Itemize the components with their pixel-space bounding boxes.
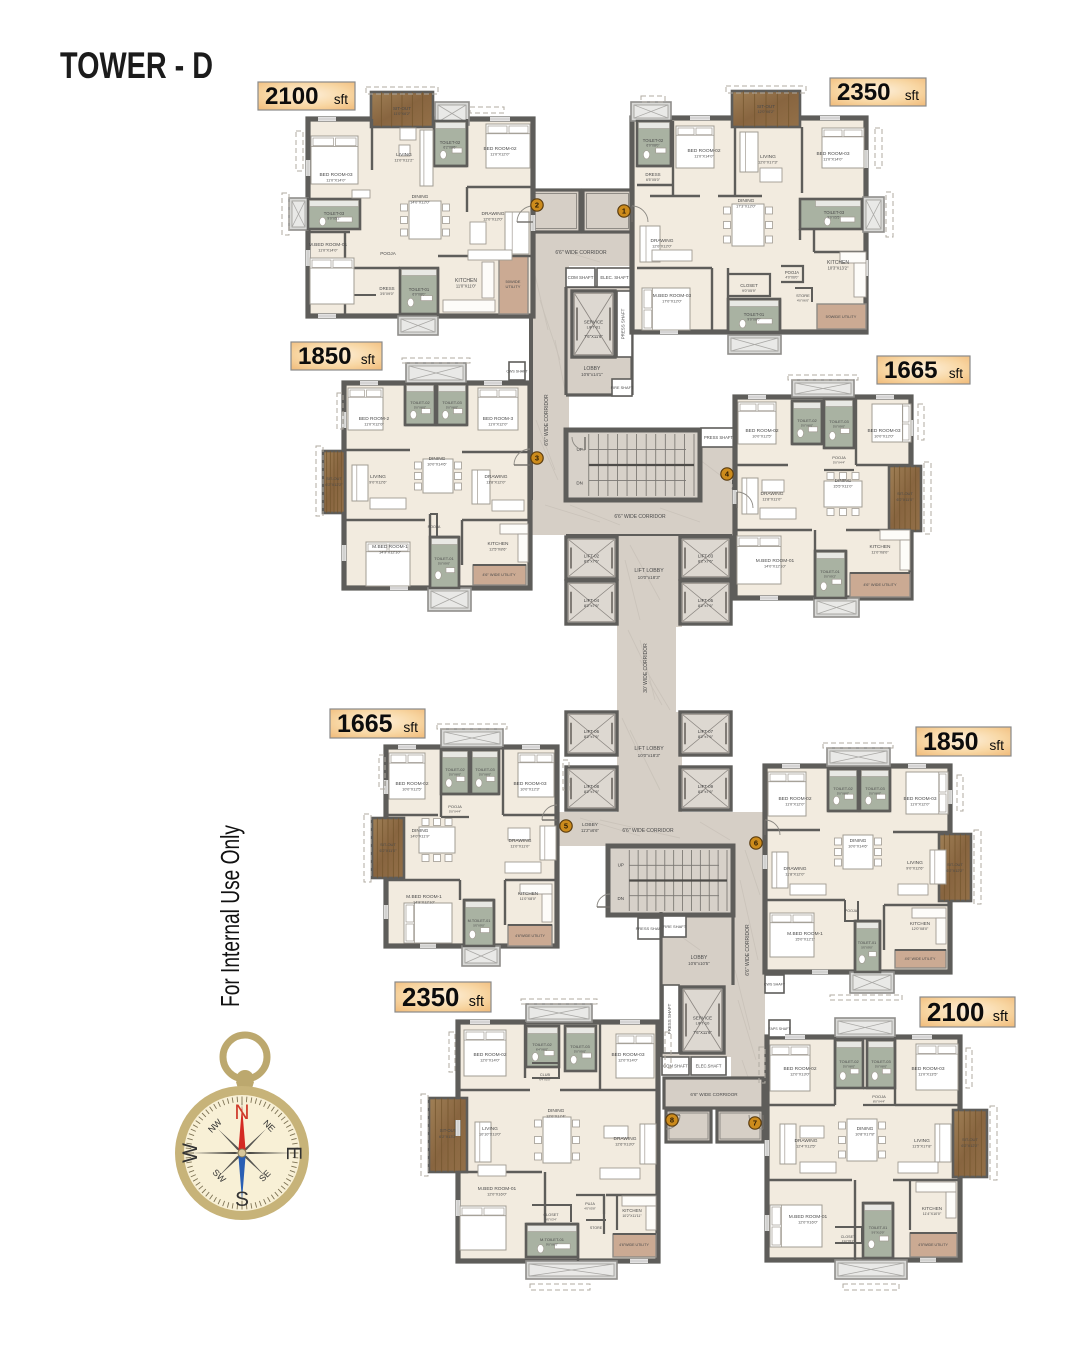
svg-text:10'3"X13'2": 10'3"X13'2" <box>828 266 849 271</box>
svg-text:8'2"x7'6": 8'2"x7'6" <box>698 603 714 608</box>
svg-text:1665: 1665 <box>884 357 938 384</box>
svg-text:2350: 2350 <box>402 984 459 1012</box>
svg-text:6'6" WIDE CORRIDOR: 6'6" WIDE CORRIDOR <box>555 250 607 256</box>
svg-text:TOWER - D: TOWER - D <box>60 45 213 86</box>
svg-text:6'6" WIDE CORRIDOR: 6'6" WIDE CORRIDOR <box>622 828 674 834</box>
svg-text:CLOSET: CLOSET <box>841 1235 856 1239</box>
svg-text:1665: 1665 <box>337 710 393 738</box>
svg-text:TOILET-02: TOILET-02 <box>440 140 461 145</box>
svg-text:17'0"X12'0": 17'0"X12'0" <box>662 298 682 303</box>
svg-text:12'0"X12'0": 12'0"X12'0" <box>652 243 672 248</box>
svg-text:9'0"X6'0": 9'0"X6'0" <box>546 1243 558 1247</box>
svg-text:6'2"X11'0": 6'2"X11'0" <box>380 849 398 853</box>
svg-text:12'0"X8'0": 12'0"X8'0" <box>912 927 929 931</box>
svg-text:TOILET-03: TOILET-03 <box>871 1059 891 1064</box>
svg-text:11'0"X14'0": 11'0"X14'0" <box>694 153 714 158</box>
svg-text:9'0"X6'0": 9'0"X6'0" <box>747 318 761 322</box>
svg-text:5'0"X8'0": 5'0"X8'0" <box>875 1065 887 1069</box>
svg-text:4'6" WIDE UTILITY: 4'6" WIDE UTILITY <box>482 572 516 577</box>
svg-text:8'2"x7'6": 8'2"x7'6" <box>584 734 600 739</box>
svg-text:11'0"X12'0": 11'0"X12'0" <box>490 151 510 156</box>
svg-text:7: 7 <box>753 1119 757 1128</box>
svg-text:11'8"X12'0": 11'8"X12'0" <box>486 479 506 484</box>
svg-text:M.TOILET-01: M.TOILET-01 <box>540 1237 565 1242</box>
svg-text:SIT-OUT: SIT-OUT <box>326 476 342 481</box>
svg-text:9'0"X3'4": 9'0"X3'4" <box>545 1217 557 1221</box>
svg-text:POOJA: POOJA <box>832 455 846 460</box>
svg-text:6'6" WIDE CORRIDOR: 6'6" WIDE CORRIDOR <box>690 1092 738 1097</box>
svg-text:10'6"x10'5": 10'6"x10'5" <box>688 961 710 966</box>
svg-text:5'0"X8'0": 5'0"X8'0" <box>837 792 849 796</box>
svg-text:SIT-OUT: SIT-OUT <box>947 862 963 867</box>
svg-text:PRESS SHAFT: PRESS SHAFT <box>704 435 734 440</box>
svg-text:8'2"x7'6": 8'2"x7'6" <box>584 559 600 564</box>
svg-text:1850: 1850 <box>298 343 352 370</box>
svg-text:11'0"X6'2": 11'0"X6'2" <box>394 112 411 116</box>
svg-text:10'0"X12'3": 10'0"X12'3" <box>520 786 540 791</box>
svg-text:2100: 2100 <box>265 83 319 110</box>
svg-text:LIFT-01: LIFT-01 <box>587 325 602 330</box>
svg-text:DRESS: DRESS <box>379 286 394 291</box>
svg-text:TOILET-02: TOILET-02 <box>445 767 465 772</box>
svg-text:6'2"X12'2": 6'2"X12'2" <box>325 483 343 487</box>
svg-text:4'6"WIDE UTILITY: 4'6"WIDE UTILITY <box>515 934 545 938</box>
svg-text:LIFT-10: LIFT-10 <box>696 1021 711 1026</box>
svg-text:POOJA: POOJA <box>845 909 858 913</box>
svg-text:5'0"X9'0": 5'0"X9'0" <box>473 923 485 927</box>
svg-text:11'0"X8'0": 11'0"X8'0" <box>520 897 537 901</box>
svg-text:6'6" WIDE CORRIDOR: 6'6" WIDE CORRIDOR <box>544 394 550 446</box>
svg-text:5'0WIDE UTILITY: 5'0WIDE UTILITY <box>826 314 857 319</box>
svg-text:3: 3 <box>535 454 539 463</box>
svg-text:11'0"X11'0": 11'0"X11'0" <box>456 284 477 289</box>
svg-text:5: 5 <box>564 822 568 831</box>
svg-text:For Internal Use Only: For Internal Use Only <box>215 825 245 1007</box>
svg-text:11'0"X14'0": 11'0"X14'0" <box>823 156 843 161</box>
svg-text:11'5"X17'8": 11'5"X17'8" <box>912 1143 932 1148</box>
svg-text:FIRE SHAFT: FIRE SHAFT <box>611 385 634 390</box>
svg-text:KITCHEN: KITCHEN <box>622 1208 641 1213</box>
svg-text:12'0"X12'0": 12'0"X12'0" <box>483 216 503 221</box>
svg-text:6'2"X11'0": 6'2"X11'0" <box>897 498 915 502</box>
svg-text:5'0"X9'0": 5'0"X9'0" <box>861 945 873 949</box>
svg-text:UTILITY: UTILITY <box>506 284 521 289</box>
svg-text:DRESS: DRESS <box>645 172 660 177</box>
svg-text:4'6" WIDE UTILITY: 4'6" WIDE UTILITY <box>863 582 897 587</box>
svg-text:TOILET-02: TOILET-02 <box>410 400 430 405</box>
svg-text:FAPS SHAFT: FAPS SHAFT <box>769 1027 792 1031</box>
svg-text:10'0"x18'3": 10'0"x18'3" <box>638 575 661 580</box>
svg-text:6'5"X5'0": 6'5"X5'0" <box>646 178 661 182</box>
svg-text:LIFT LOBBY: LIFT LOBBY <box>634 568 664 574</box>
svg-text:15'5"X11'0": 15'5"X11'0" <box>833 483 853 488</box>
svg-text:TOILET-02: TOILET-02 <box>833 786 853 791</box>
svg-text:DN: DN <box>576 481 583 486</box>
svg-text:POOJA: POOJA <box>428 525 441 529</box>
svg-text:4'5"WIDE UTILITY: 4'5"WIDE UTILITY <box>918 1243 948 1247</box>
svg-text:7'6"X11'6": 7'6"X11'6" <box>693 1030 712 1035</box>
svg-text:COM SHAFT: COM SHAFT <box>663 1064 688 1069</box>
svg-text:4'0"X6'0": 4'0"X6'0" <box>785 276 799 280</box>
svg-text:SIT-OUT: SIT-OUT <box>897 491 913 496</box>
svg-text:6'0"X8'0": 6'0"X8'0" <box>646 144 660 148</box>
svg-text:9'0"X12'6": 9'0"X12'6" <box>906 865 924 870</box>
svg-text:6: 6 <box>754 839 758 848</box>
svg-text:11'8"X12'0": 11'8"X12'0" <box>785 871 805 876</box>
svg-text:TOILET-02: TOILET-02 <box>532 1042 552 1047</box>
svg-text:11'0"X12'0": 11'0"X12'0" <box>785 801 805 806</box>
svg-text:KITCHEN: KITCHEN <box>910 921 930 926</box>
svg-text:8'2"x7'6": 8'2"x7'6" <box>698 559 714 564</box>
svg-text:5'0"X9'2": 5'0"X9'2" <box>824 575 836 579</box>
svg-text:17'3"X12'0": 17'3"X12'0" <box>736 203 756 208</box>
svg-text:10'6"x14'1": 10'6"x14'1" <box>581 372 603 377</box>
svg-text:POOJA: POOJA <box>785 270 799 275</box>
svg-text:sft: sft <box>361 352 375 367</box>
svg-text:8: 8 <box>670 1116 674 1125</box>
svg-text:TOILET-03: TOILET-03 <box>475 767 495 772</box>
svg-text:CLOSET: CLOSET <box>740 283 758 288</box>
svg-text:3'6"X9'0": 3'6"X9'0" <box>380 292 395 296</box>
svg-text:sft: sft <box>905 88 919 103</box>
svg-text:6'4"X5'0": 6'4"X5'0" <box>539 1077 551 1081</box>
svg-text:5'0"X9'0": 5'0"X9'0" <box>833 425 845 429</box>
svg-text:LIFT LOBBY: LIFT LOBBY <box>634 746 664 752</box>
svg-text:W: W <box>179 1143 202 1163</box>
svg-text:9'0"X5'2": 9'0"X5'2" <box>327 217 341 221</box>
svg-text:4'0"X5'8": 4'0"X5'8" <box>584 1206 596 1210</box>
svg-text:5'0"X9'0": 5'0"X9'0" <box>438 562 450 566</box>
svg-text:FIRE SHAFT: FIRE SHAFT <box>663 924 687 929</box>
svg-text:SIT-OUT: SIT-OUT <box>380 842 396 847</box>
svg-text:11'0"X14'0": 11'0"X14'0" <box>326 177 346 182</box>
svg-text:POOJA: POOJA <box>380 251 397 256</box>
svg-text:2: 2 <box>535 201 539 210</box>
svg-text:4'0"X6'0": 4'0"X6'0" <box>797 299 809 303</box>
svg-text:12'0"X14'0": 12'0"X14'0" <box>480 1057 500 1062</box>
svg-text:SIT-OUT: SIT-OUT <box>440 1128 457 1133</box>
svg-text:12'4"X12'5": 12'4"X12'5" <box>796 1143 816 1148</box>
svg-text:sft: sft <box>989 737 1004 753</box>
svg-text:6'2"X8'6": 6'2"X8'6" <box>443 146 457 150</box>
svg-text:6'0"X8'0": 6'0"X8'0" <box>412 293 426 297</box>
svg-text:12'0"X14'0": 12'0"X14'0" <box>618 1057 638 1062</box>
svg-text:DN: DN <box>618 896 625 901</box>
svg-text:sft: sft <box>403 719 418 735</box>
svg-text:TOILET-03: TOILET-03 <box>824 210 845 215</box>
svg-text:N: N <box>234 1101 249 1124</box>
svg-text:10'0"X12'0": 10'0"X12'0" <box>874 433 894 438</box>
svg-text:12'0"X16'0": 12'0"X16'0" <box>487 1191 507 1196</box>
svg-text:sft: sft <box>993 1009 1008 1025</box>
svg-text:14'9"X12'10": 14'9"X12'10" <box>413 899 436 904</box>
svg-text:7'6"X11'6": 7'6"X11'6" <box>584 334 603 339</box>
svg-text:11'0"X12'0": 11'0"X12'0" <box>364 421 384 426</box>
svg-text:TOILET-02: TOILET-02 <box>797 418 817 423</box>
svg-text:PRESS SHAFT: PRESS SHAFT <box>667 1003 672 1034</box>
svg-text:14'0"X12'10": 14'0"X12'10" <box>764 563 787 568</box>
svg-text:15'0"X12'1": 15'0"X12'1" <box>795 936 815 941</box>
svg-text:TOILET-02: TOILET-02 <box>839 1059 859 1064</box>
svg-text:11'0"X12'0": 11'0"X12'0" <box>488 421 508 426</box>
svg-text:SIT-OUT: SIT-OUT <box>393 106 411 111</box>
svg-text:11'0"X13'5": 11'0"X13'5" <box>918 1071 938 1076</box>
svg-text:5'0"X4'4": 5'0"X4'4" <box>833 461 845 465</box>
svg-text:STORE: STORE <box>590 1226 603 1230</box>
svg-text:TOILET-03: TOILET-03 <box>829 419 849 424</box>
svg-text:6'6" WIDE CORRIDOR: 6'6" WIDE CORRIDOR <box>614 514 666 520</box>
svg-text:12'5"X8'6": 12'5"X8'6" <box>489 546 507 551</box>
svg-text:10'0"X12'5": 10'0"X12'5" <box>402 786 422 791</box>
svg-text:12'0"X13'0": 12'0"X13'0" <box>790 1071 810 1076</box>
svg-text:12'0"X17'3": 12'0"X17'3" <box>758 159 778 164</box>
svg-text:5'0"X8'0": 5'0"X8'0" <box>479 773 491 777</box>
svg-text:2100: 2100 <box>927 999 984 1027</box>
svg-text:1: 1 <box>622 207 626 216</box>
svg-text:5'0"X9'0": 5'0"X9'0" <box>574 1050 586 1054</box>
svg-text:11'4"X10'0": 11'4"X10'0" <box>923 1212 942 1216</box>
svg-text:4'10"X5'4": 4'10"X5'4" <box>842 1239 854 1243</box>
svg-text:8'2"x7'6": 8'2"x7'6" <box>584 603 600 608</box>
svg-text:14'0"X12'0": 14'0"X12'0" <box>410 199 430 204</box>
svg-text:5'0"X8'0": 5'0"X8'0" <box>446 406 458 410</box>
svg-text:11'0"X11'2": 11'0"X11'2" <box>394 157 414 162</box>
svg-text:10'2"X11'11": 10'2"X11'11" <box>622 1214 642 1218</box>
svg-text:5'0"X8'0": 5'0"X8'0" <box>869 792 881 796</box>
svg-text:6'6" WIDE CORRIDOR: 6'6" WIDE CORRIDOR <box>745 924 751 976</box>
svg-text:30' WIDE CORRIDOR: 30' WIDE CORRIDOR <box>643 643 649 693</box>
svg-text:5'0"X4'4": 5'0"X4'4" <box>449 810 461 814</box>
svg-text:STORE: STORE <box>796 293 810 298</box>
svg-text:TOILET-03: TOILET-03 <box>442 400 462 405</box>
svg-text:POOJA: POOJA <box>872 1094 886 1099</box>
svg-text:5'0"X8'0": 5'0"X8'0" <box>449 773 461 777</box>
svg-text:11'0"X12'0": 11'0"X12'0" <box>910 801 930 806</box>
svg-text:KITCHEN: KITCHEN <box>922 1206 942 1211</box>
svg-text:sft: sft <box>469 994 484 1010</box>
svg-text:10'0"X14'6": 10'0"X14'6" <box>848 843 868 848</box>
svg-text:KITCHEN: KITCHEN <box>518 891 538 896</box>
svg-text:TOILET-03: TOILET-03 <box>865 786 885 791</box>
svg-text:TOILET-01: TOILET-01 <box>409 287 430 292</box>
svg-text:sft: sft <box>334 92 348 107</box>
svg-text:TOILET-01: TOILET-01 <box>820 569 840 574</box>
svg-text:ELEC. SHAFT: ELEC. SHAFT <box>600 275 629 280</box>
svg-text:14'9"X12'10": 14'9"X12'10" <box>379 549 402 554</box>
svg-text:TOILET-01: TOILET-01 <box>744 312 765 317</box>
svg-text:9'0"X12'6": 9'0"X12'6" <box>369 479 387 484</box>
svg-text:11'0"X8'0": 11'0"X8'0" <box>871 549 889 554</box>
svg-text:14'0"X11'9": 14'0"X11'9" <box>410 833 430 838</box>
svg-text:UP: UP <box>618 863 624 868</box>
svg-text:CWS SHAFT: CWS SHAFT <box>506 369 528 373</box>
svg-text:TOILET-03: TOILET-03 <box>570 1044 590 1049</box>
svg-text:11'0"X11'0": 11'0"X11'0" <box>510 843 530 848</box>
svg-text:8'2"x7'6": 8'2"x7'6" <box>698 734 714 739</box>
svg-text:12'6"X13'0": 12'6"X13'0" <box>615 1141 635 1146</box>
svg-text:PRESS SHAFT: PRESS SHAFT <box>621 308 626 339</box>
svg-text:8'2"x7'6": 8'2"x7'6" <box>698 789 714 794</box>
svg-text:TOILET-02: TOILET-02 <box>643 138 664 143</box>
svg-text:S: S <box>235 1188 249 1211</box>
svg-text:5'6"X10'0": 5'6"X10'0" <box>871 1230 884 1234</box>
svg-text:11'0"X14'0": 11'0"X14'0" <box>318 247 338 252</box>
svg-text:5'0"X8'0": 5'0"X8'0" <box>843 1065 855 1069</box>
svg-text:4'6" WIDE UTILITY: 4'6" WIDE UTILITY <box>905 957 936 961</box>
svg-text:6'2"X12'2": 6'2"X12'2" <box>946 869 964 873</box>
svg-text:9'0"X5'9": 9'0"X5'9" <box>742 289 757 293</box>
svg-text:E: E <box>282 1146 305 1160</box>
svg-text:8'0"X4'4": 8'0"X4'4" <box>873 1100 885 1104</box>
svg-text:6'2"X13'2": 6'2"X13'2" <box>439 1134 457 1139</box>
svg-text:SIT-OUT: SIT-OUT <box>962 1137 978 1142</box>
svg-text:11'8"X11'0": 11'8"X11'0" <box>762 496 782 501</box>
svg-text:10'0"X14'6": 10'0"X14'6" <box>427 461 447 466</box>
svg-text:6'2"X12'2": 6'2"X12'2" <box>961 1144 979 1148</box>
svg-text:10'10"X13'0": 10'10"X13'0" <box>479 1131 502 1136</box>
svg-text:TOILET-01: TOILET-01 <box>434 556 454 561</box>
svg-text:6'4"X8'0": 6'4"X8'0" <box>536 1048 548 1052</box>
svg-text:ELEC.SHAFT: ELEC.SHAFT <box>696 1064 722 1069</box>
svg-text:10'8"X17'8": 10'8"X17'8" <box>855 1131 875 1136</box>
svg-text:POOJA: POOJA <box>448 804 462 809</box>
svg-text:COM SHAFT: COM SHAFT <box>568 275 594 280</box>
svg-text:SIT-OUT: SIT-OUT <box>757 104 775 109</box>
svg-text:CWS SHAFT: CWS SHAFT <box>764 982 786 986</box>
svg-text:12'0"X16'0": 12'0"X16'0" <box>798 1219 818 1224</box>
svg-text:12'0"X17'4": 12'0"X17'4" <box>546 1113 566 1118</box>
svg-text:5'0"X8'0": 5'0"X8'0" <box>801 424 813 428</box>
svg-text:2350: 2350 <box>837 79 891 106</box>
svg-text:11'2"x6'6": 11'2"x6'6" <box>581 828 600 833</box>
svg-text:10'0"x18'3": 10'0"x18'3" <box>638 753 661 758</box>
svg-text:10'0"X12'5": 10'0"X12'5" <box>752 433 772 438</box>
svg-text:9'0"X5'5": 9'0"X5'5" <box>827 216 841 220</box>
svg-text:5'0"X8'0": 5'0"X8'0" <box>414 406 426 410</box>
svg-text:1850: 1850 <box>923 728 978 756</box>
svg-text:TOILET-03: TOILET-03 <box>324 211 345 216</box>
svg-text:sft: sft <box>949 366 963 381</box>
svg-text:12'0"X6'2": 12'0"X6'2" <box>758 110 775 114</box>
svg-text:4'6"WIDE UTILITY: 4'6"WIDE UTILITY <box>619 1243 649 1247</box>
svg-text:8'2"x7'6": 8'2"x7'6" <box>584 789 600 794</box>
